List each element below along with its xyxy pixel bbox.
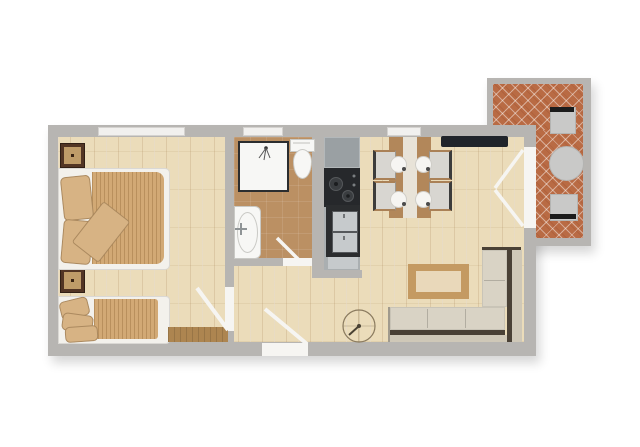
sofa-seat-divider-2	[465, 309, 466, 328]
sofa-left-armrest	[388, 307, 390, 342]
plate-3	[415, 156, 432, 173]
sofa-seat-divider-3	[484, 280, 505, 281]
kitchen-lower-panel	[328, 257, 358, 269]
wall-right-lower	[524, 228, 536, 342]
nightstand-top	[60, 143, 85, 168]
wall-right-upper	[524, 137, 536, 147]
dining-table-runner	[403, 137, 417, 218]
cup-2	[402, 202, 406, 206]
sofa-right-back	[512, 250, 522, 342]
floor-plan	[0, 0, 640, 447]
single-bed-pillow-3	[64, 325, 98, 343]
cup-1	[402, 167, 406, 171]
entrance-door-opening	[262, 343, 308, 356]
dining-chair-3	[429, 150, 452, 180]
window-bedroom	[98, 127, 185, 136]
sofa-bottom-seats	[390, 307, 505, 330]
sofa-seat-divider-1	[427, 309, 428, 328]
double-bed-pillow-1	[60, 175, 94, 222]
wall-kitchen-bottom	[324, 270, 362, 278]
bedroom-door-opening	[225, 287, 234, 331]
nightstand-bottom-knob	[71, 279, 74, 282]
wall-bathroom-kitchen	[312, 137, 324, 278]
sofa-right-seats	[482, 250, 507, 307]
terrace-chair-bottom-back	[550, 214, 576, 219]
wall-bathroom-bottom	[225, 258, 283, 266]
nightstand-top-knob	[71, 154, 74, 157]
bathroom-door-opening	[283, 258, 312, 266]
plate-4	[415, 191, 432, 208]
french-door-opening	[524, 147, 536, 228]
shower	[238, 141, 289, 192]
oven-upper-door	[332, 211, 358, 232]
terrace-wall-right	[583, 78, 591, 246]
wall-left	[48, 125, 58, 356]
cooktop	[324, 168, 360, 207]
kitchen-counter-top-segment	[324, 137, 360, 168]
bedroom-mat	[168, 327, 228, 342]
terrace-table	[549, 146, 584, 181]
oven-lower-door	[332, 232, 358, 253]
terrace-chair-top-back	[550, 107, 574, 112]
nightstand-bottom	[60, 268, 85, 293]
sink-basin	[237, 212, 258, 253]
cup-4	[426, 202, 430, 206]
cup-3	[426, 167, 430, 171]
single-bed-blanket	[94, 299, 158, 339]
window-bathroom	[243, 127, 283, 136]
coffee-table-top	[416, 271, 461, 292]
terrace-wall-bottom	[534, 238, 591, 246]
dining-chair-4	[429, 181, 452, 211]
tv-sideboard	[441, 136, 508, 147]
window-dining	[387, 127, 421, 136]
sofa-bottom-back	[390, 335, 512, 342]
